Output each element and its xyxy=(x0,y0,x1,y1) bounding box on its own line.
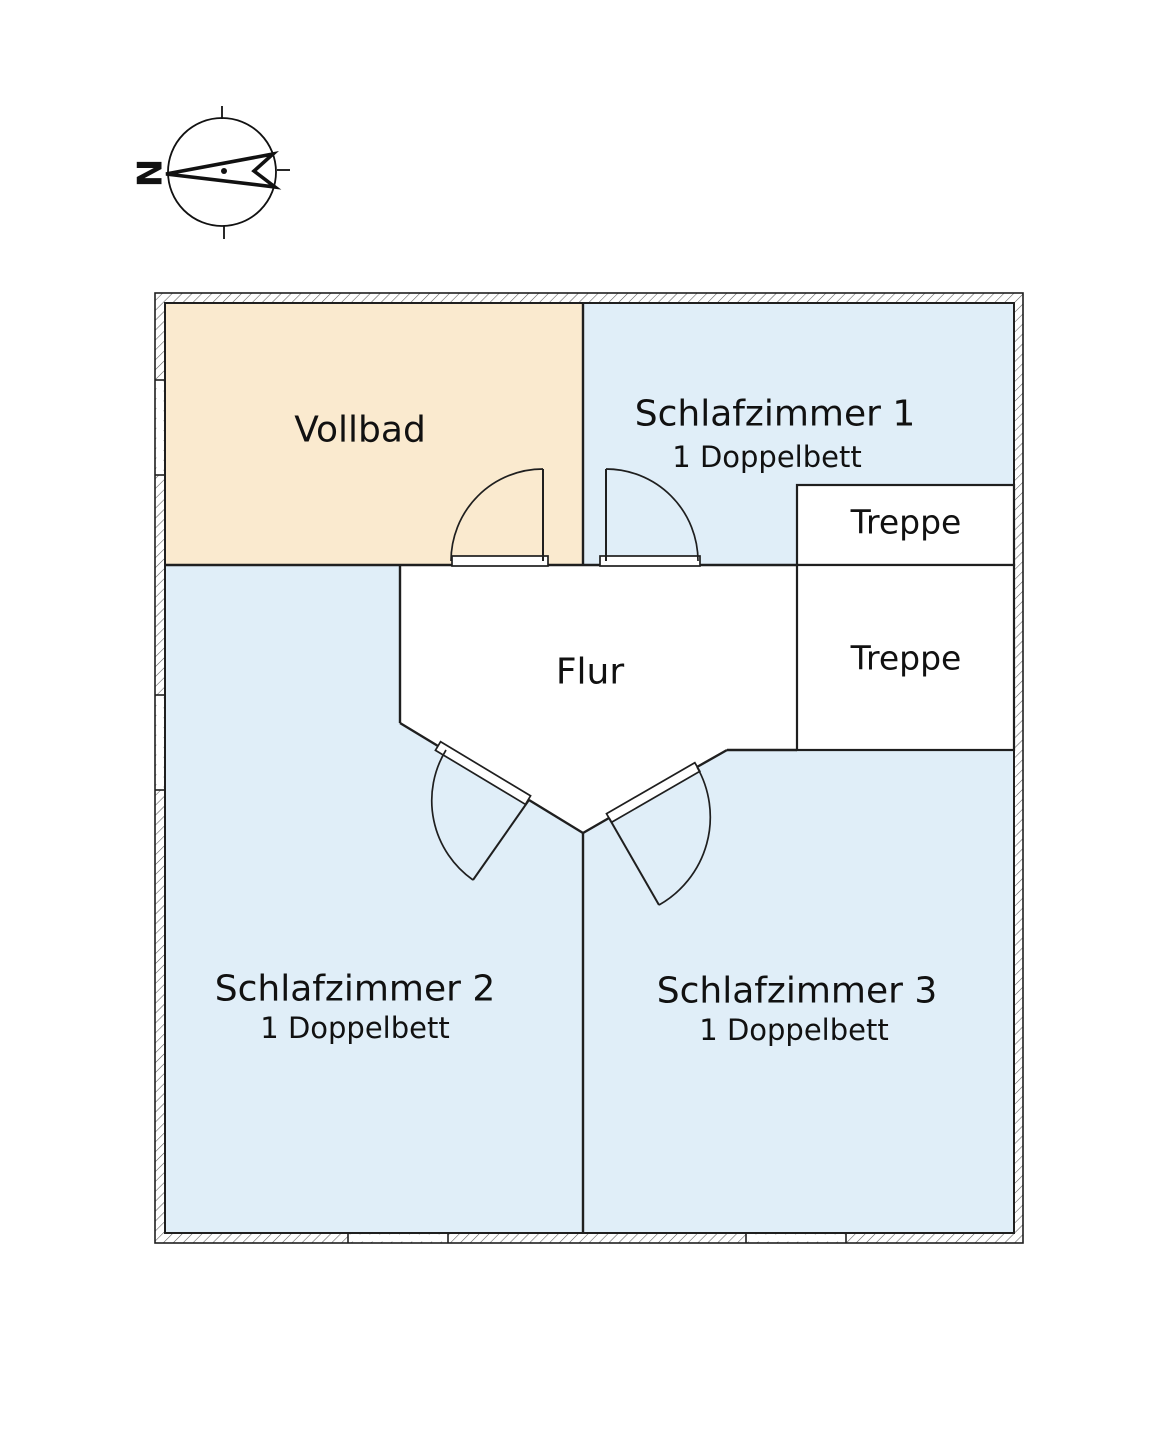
window-schlafzimmer2-south xyxy=(348,1233,448,1243)
room-label-flur: Flur xyxy=(556,652,624,693)
north-arrow xyxy=(166,154,275,187)
compass-center-dot xyxy=(221,168,227,174)
room-sublabel-schlafzimmer1: 1 Doppelbett xyxy=(672,440,861,474)
room-label-vollbad: Vollbad xyxy=(294,410,426,451)
room-label-treppe-upper: Treppe xyxy=(851,503,962,542)
floorplan-page: N xyxy=(0,0,1169,1440)
window-schlafzimmer2-west xyxy=(155,695,165,790)
window-vollbad-west xyxy=(155,380,165,475)
room-fills xyxy=(165,303,1014,1233)
floorplan-drawing: N xyxy=(0,0,1169,1440)
compass-icon: N xyxy=(131,106,291,239)
compass-north-label: N xyxy=(131,159,171,187)
window-schlafzimmer3-south xyxy=(746,1233,846,1243)
room-sublabel-schlafzimmer3: 1 Doppelbett xyxy=(699,1013,888,1047)
room-label-schlafzimmer2: Schlafzimmer 2 xyxy=(215,969,496,1010)
room-sublabel-schlafzimmer2: 1 Doppelbett xyxy=(260,1011,449,1045)
room-label-schlafzimmer1: Schlafzimmer 1 xyxy=(635,394,916,435)
room-label-schlafzimmer3: Schlafzimmer 3 xyxy=(657,971,938,1012)
room-label-treppe-lower: Treppe xyxy=(851,639,962,678)
